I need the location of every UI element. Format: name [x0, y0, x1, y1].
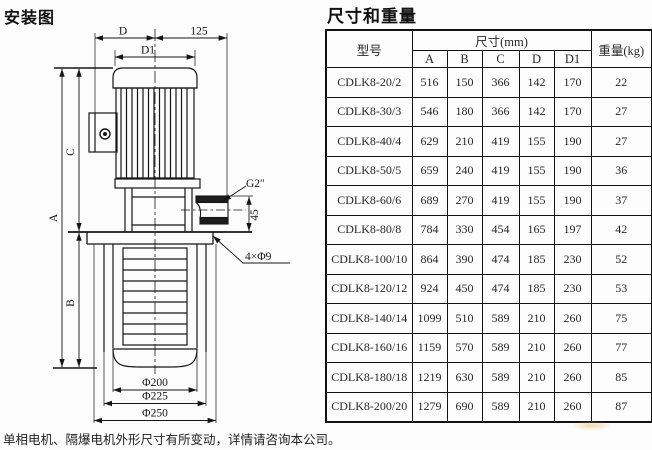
cell-model: CDLK8-30/3 [326, 97, 412, 127]
cell-c: 589 [482, 304, 519, 334]
cell-a: 659 [412, 156, 447, 186]
cell-d1: 230 [554, 274, 591, 304]
header-col-a: A [412, 51, 447, 68]
table-row: CDLK8-120/12 924 450 474 185 230 53 [326, 274, 652, 304]
cell-d: 155 [519, 156, 554, 186]
dimension-labels: D 125 D1 A C B 45 G2″ 4×Φ9 Φ200 Φ225 Φ25… [48, 26, 272, 420]
cell-b: 390 [447, 245, 482, 275]
holes-label: 4×Φ9 [245, 251, 272, 263]
cell-b: 270 [447, 186, 482, 216]
cell-model: CDLK8-100/10 [326, 245, 412, 275]
cell-weight: 36 [591, 156, 652, 186]
cell-weight: 22 [591, 68, 652, 98]
cell-model: CDLK8-120/12 [326, 274, 412, 304]
dim-label-45: 45 [249, 209, 261, 221]
scan-artifact [570, 421, 612, 430]
cell-c: 366 [482, 68, 519, 98]
cell-d1: 170 [554, 68, 591, 98]
table-row: CDLK8-20/2 516 150 366 142 170 22 [326, 68, 652, 98]
table-row: CDLK8-30/3 546 180 366 142 170 27 [326, 97, 652, 127]
table-row: CDLK8-80/8 784 330 454 165 197 42 [326, 215, 652, 245]
cell-d: 210 [519, 304, 554, 334]
cell-weight: 52 [591, 245, 652, 275]
header-col-d: D [519, 51, 554, 68]
cell-c: 419 [482, 156, 519, 186]
cell-model: CDLK8-200/20 [326, 392, 412, 422]
cell-d: 210 [519, 333, 554, 363]
dim-label-b: B [65, 299, 77, 307]
dim-label-a: A [48, 213, 60, 222]
motor-outline [113, 68, 200, 188]
cell-a: 784 [412, 215, 447, 245]
mounting-flange [68, 232, 252, 244]
header-weight: 重量(kg) [591, 30, 652, 68]
cell-model: CDLK8-60/6 [326, 186, 412, 216]
cell-b: 180 [447, 97, 482, 127]
leader-thread [223, 186, 246, 201]
cell-c: 419 [482, 186, 519, 216]
thread-label: G2″ [246, 178, 265, 190]
table-title: 尺寸和重量 [327, 2, 417, 27]
cell-weight: 75 [591, 304, 652, 334]
cell-c: 589 [482, 333, 519, 363]
cell-c: 419 [482, 127, 519, 157]
cell-a: 1159 [412, 333, 447, 363]
dim-label-phi225: Φ225 [142, 391, 168, 403]
table-row: CDLK8-100/10 864 390 474 185 230 52 [326, 245, 652, 275]
terminal-box [89, 113, 117, 152]
cell-b: 150 [447, 68, 482, 98]
cell-a: 629 [412, 127, 447, 157]
cell-model: CDLK8-180/18 [326, 363, 412, 393]
cell-model: CDLK8-20/2 [326, 68, 412, 98]
cell-d1: 197 [554, 215, 591, 245]
table-row: CDLK8-200/20 1279 690 589 210 260 87 [326, 392, 652, 422]
cell-a: 1279 [412, 392, 447, 422]
cell-c: 454 [482, 215, 519, 245]
cell-d: 210 [519, 392, 554, 422]
table-row: CDLK8-40/4 629 210 419 155 190 27 [326, 127, 652, 157]
table-row: CDLK8-140/14 1099 510 589 210 260 75 [326, 304, 652, 334]
cell-d1: 170 [554, 97, 591, 127]
cell-weight: 77 [591, 333, 652, 363]
dim-label-c: C [65, 148, 77, 156]
cell-d1: 260 [554, 333, 591, 363]
cell-c: 589 [482, 363, 519, 393]
header-col-b: B [447, 51, 482, 68]
header-size-group: 尺寸(mm) [412, 30, 591, 51]
table-row: CDLK8-180/18 1219 630 589 210 260 85 [326, 363, 652, 393]
cell-d: 185 [519, 245, 554, 275]
dimensions-table: 型号 尺寸(mm) 重量(kg) A B C D D1 CDLK8-20/2 5… [325, 29, 652, 423]
cell-c: 474 [482, 274, 519, 304]
table-row: CDLK8-50/5 659 240 419 155 190 36 [326, 156, 652, 186]
cell-weight: 85 [591, 363, 652, 393]
cell-model: CDLK8-80/8 [326, 215, 412, 245]
footer-note: 单相电机、隔爆电机外形尺寸有所变动，详情请咨询本公司。 [3, 429, 333, 448]
cell-weight: 87 [591, 392, 652, 422]
cell-model: CDLK8-140/14 [326, 304, 412, 334]
cell-d: 142 [519, 68, 554, 98]
table-row: CDLK8-160/16 1159 570 589 210 260 77 [326, 333, 652, 363]
cell-d1: 260 [554, 392, 591, 422]
cell-a: 1219 [412, 363, 447, 393]
dim-label-d: D [119, 26, 127, 38]
cell-d1: 190 [554, 127, 591, 157]
table-row: CDLK8-60/6 689 270 419 155 190 37 [326, 186, 652, 216]
header-model: 型号 [326, 30, 412, 68]
cell-a: 546 [412, 97, 447, 127]
cell-a: 864 [412, 245, 447, 275]
dim-label-d1: D1 [141, 45, 155, 57]
cell-d1: 260 [554, 363, 591, 393]
cell-d1: 190 [554, 156, 591, 186]
cell-d: 155 [519, 127, 554, 157]
cell-a: 1099 [412, 304, 447, 334]
cell-d: 185 [519, 274, 554, 304]
cell-d1: 190 [554, 186, 591, 216]
cell-d: 165 [519, 215, 554, 245]
cell-model: CDLK8-160/16 [326, 333, 412, 363]
cell-c: 589 [482, 392, 519, 422]
cell-weight: 37 [591, 186, 652, 216]
cell-a: 689 [412, 186, 447, 216]
header-col-c: C [482, 51, 519, 68]
cell-d: 210 [519, 363, 554, 393]
cell-b: 240 [447, 156, 482, 186]
dim-label-125: 125 [190, 26, 208, 38]
pump-installation-drawing: D 125 D1 A C B 45 G2″ 4×Φ9 Φ200 Φ225 Φ25… [0, 0, 322, 450]
cell-d1: 260 [554, 304, 591, 334]
cell-weight: 27 [591, 97, 652, 127]
cell-model: CDLK8-40/4 [326, 127, 412, 157]
dim-label-phi200: Φ200 [142, 377, 168, 389]
motor-fins [121, 88, 187, 178]
cell-weight: 53 [591, 274, 652, 304]
cell-b: 330 [447, 215, 482, 245]
cell-weight: 42 [591, 215, 652, 245]
cell-d: 155 [519, 186, 554, 216]
reference-lines [53, 33, 253, 423]
cell-d: 142 [519, 97, 554, 127]
cell-d1: 230 [554, 245, 591, 275]
cell-model: CDLK8-50/5 [326, 156, 412, 186]
cell-b: 450 [447, 274, 482, 304]
cell-b: 630 [447, 363, 482, 393]
cell-b: 210 [447, 127, 482, 157]
cell-weight: 27 [591, 127, 652, 157]
cell-b: 510 [447, 304, 482, 334]
dim-label-phi250: Φ250 [142, 408, 168, 420]
header-col-d1: D1 [554, 51, 591, 68]
catalog-page: 安装图 尺寸和重量 [0, 0, 652, 450]
cell-a: 924 [412, 274, 447, 304]
cell-c: 474 [482, 245, 519, 275]
cell-c: 366 [482, 97, 519, 127]
cell-a: 516 [412, 68, 447, 98]
cell-b: 570 [447, 333, 482, 363]
cell-b: 690 [447, 392, 482, 422]
